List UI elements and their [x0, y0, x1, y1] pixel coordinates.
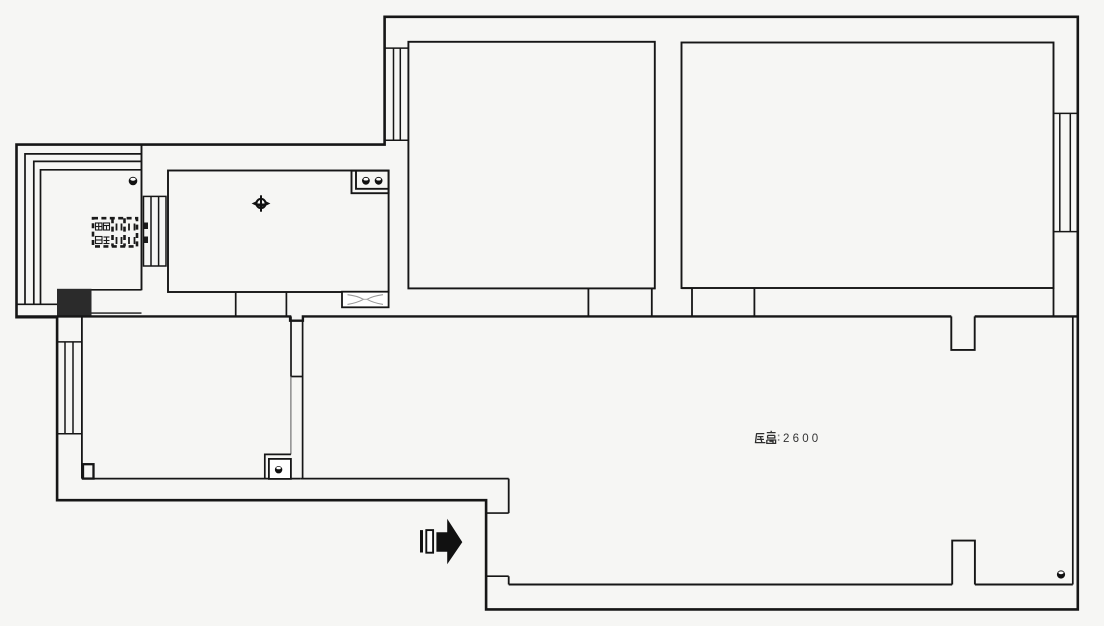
svg-text:2600: 2600 — [783, 433, 821, 445]
